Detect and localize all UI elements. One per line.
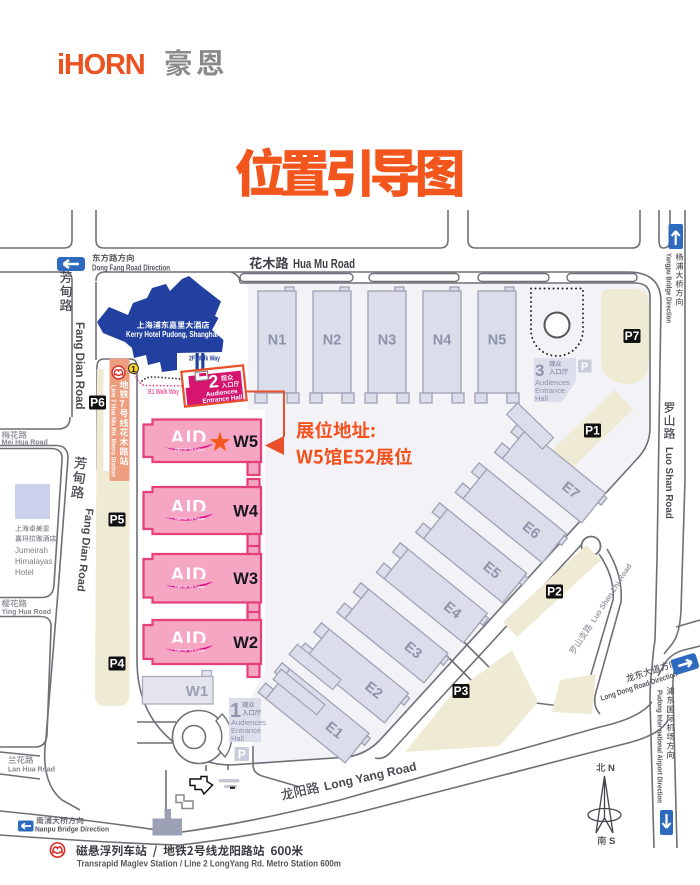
svg-text:Transrapid Maglev Station / Li: Transrapid Maglev Station / Line 2 LongY… [77, 858, 341, 869]
svg-text:Yangpu Bridge Direction: Yangpu Bridge Direction [665, 253, 672, 323]
svg-text:AID: AID [170, 497, 207, 519]
svg-text:Himalayas: Himalayas [15, 557, 52, 566]
svg-text:Nanpu Bridge Direction: Nanpu Bridge Direction [35, 827, 109, 834]
svg-text:N: N [608, 763, 615, 774]
svg-text:2F Walk Way: 2F Walk Way [189, 356, 220, 363]
svg-text:Luo Shan Road: Luo Shan Road [663, 447, 674, 519]
svg-text:P1: P1 [585, 424, 600, 438]
svg-text:1: 1 [131, 365, 136, 374]
svg-text:N1: N1 [268, 333, 287, 349]
svg-text:Kerry Hotel Pudong, Shanghai: Kerry Hotel Pudong, Shanghai [126, 329, 218, 339]
svg-text:P: P [238, 748, 246, 762]
svg-text:Jumeirah: Jumeirah [15, 546, 48, 555]
svg-text:Hotel: Hotel [15, 568, 34, 577]
svg-text:W2: W2 [233, 634, 258, 652]
svg-text:W1: W1 [186, 683, 209, 700]
svg-text:AID: AID [170, 628, 207, 650]
svg-text:Mei Hua Road: Mei Hua Road [2, 440, 48, 447]
svg-text:P4: P4 [110, 657, 125, 671]
svg-text:Dong Fang Road Direction: Dong Fang Road Direction [92, 264, 170, 273]
svg-text:Care for the Future: Care for the Future [175, 585, 205, 589]
svg-text:P2: P2 [547, 585, 562, 599]
svg-text:P3: P3 [454, 684, 469, 698]
svg-text:N3: N3 [378, 333, 397, 349]
svg-text:Care for the Future: Care for the Future [175, 649, 205, 653]
svg-text:Fang Dian Road: Fang Dian Road [73, 322, 85, 410]
svg-text:iHORN: iHORN [57, 49, 144, 81]
svg-text:P5: P5 [110, 513, 125, 527]
svg-text:W3: W3 [233, 570, 258, 588]
svg-text:Hall: Hall [231, 734, 244, 743]
svg-text:S: S [609, 836, 615, 847]
svg-text:N4: N4 [433, 333, 452, 349]
svg-text:Lan Hua Road: Lan Hua Road [8, 767, 55, 774]
svg-text:2: 2 [208, 371, 220, 392]
svg-text:Care for the Future: Care for the Future [175, 517, 205, 521]
svg-text:Care for the Future: Care for the Future [175, 447, 205, 451]
svg-text:Hall: Hall [535, 394, 548, 403]
svg-text:W4: W4 [233, 503, 259, 521]
svg-text:Ying Hua Road: Ying Hua Road [2, 609, 52, 616]
svg-text:P6: P6 [90, 396, 105, 410]
svg-text:N2: N2 [323, 333, 342, 349]
svg-text:P7: P7 [625, 329, 640, 343]
svg-text:AID: AID [170, 564, 207, 586]
svg-text:AID: AID [170, 427, 207, 449]
svg-text:N5: N5 [488, 333, 507, 349]
svg-text:Pudong Inter national Airport: Pudong Inter national Airport Direction [656, 690, 663, 803]
svg-text:W5: W5 [233, 433, 258, 451]
svg-text:Hua Mu Road: Hua Mu Road [293, 257, 355, 271]
svg-text:P: P [581, 361, 588, 373]
svg-text:Line 7 Hua Mu Rd. Metro Statio: Line 7 Hua Mu Rd. Metro Station [110, 385, 116, 477]
svg-text:B1 Walk Way: B1 Walk Way [148, 389, 179, 396]
